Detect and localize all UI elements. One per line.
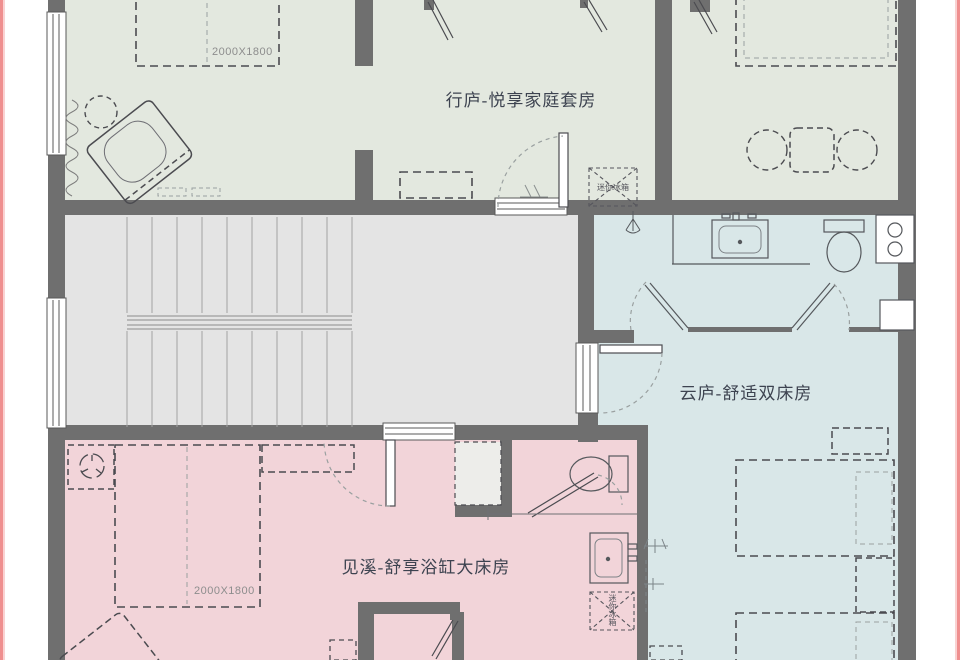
suite-chair-left bbox=[747, 130, 787, 170]
king-bed bbox=[115, 445, 260, 607]
suite-right-bedroom bbox=[736, 0, 896, 172]
king-ceiling-fan bbox=[80, 454, 104, 478]
wall-suite-partition-a bbox=[355, 0, 373, 66]
suite-armchair bbox=[85, 99, 194, 206]
suite-table bbox=[790, 128, 834, 172]
twin-luggage-rack bbox=[832, 428, 888, 454]
window-left-lower bbox=[47, 298, 66, 428]
window-king-entry bbox=[383, 423, 455, 440]
radiator-coil bbox=[66, 100, 78, 196]
floor-plan-canvas: 行庐-悦享家庭套房 云庐-舒适双床房 见溪-舒享浴缸大床房 2000X1800 … bbox=[0, 0, 960, 660]
king-lounge-chair bbox=[57, 611, 163, 660]
bath-partition-seg1 bbox=[688, 327, 792, 332]
wall-suite-partition-b bbox=[355, 150, 373, 202]
wall-shower-stall-bottom bbox=[455, 505, 512, 517]
suite-living-area bbox=[400, 133, 637, 207]
staircase bbox=[127, 217, 352, 427]
twin-bathroom bbox=[626, 211, 914, 330]
suite-right-bed bbox=[736, 0, 896, 66]
suite-bed-size-label: 2000X1800 bbox=[212, 46, 273, 58]
suite-left-bedroom bbox=[66, 0, 279, 206]
king-entry-door bbox=[324, 440, 395, 506]
wall-mid-horizontal bbox=[48, 200, 916, 215]
bath-cabinet bbox=[880, 300, 914, 330]
twin-floor-box bbox=[650, 646, 682, 660]
twin-bed-1 bbox=[736, 460, 894, 556]
king-toilet bbox=[570, 456, 628, 492]
king-bench bbox=[262, 445, 354, 472]
twin-nightstand bbox=[856, 558, 894, 612]
twin-bed-2 bbox=[736, 613, 894, 660]
fixture-symbol-hall-door bbox=[520, 185, 548, 197]
king-bed-size-label: 2000X1800 bbox=[194, 585, 255, 597]
laundry-appliance bbox=[876, 215, 914, 263]
wall-twin-top bbox=[594, 330, 634, 343]
top-edge-doors bbox=[428, 0, 717, 40]
wall-hall-bath bbox=[578, 215, 594, 345]
suite-side-table bbox=[85, 96, 117, 128]
floor-marks bbox=[158, 188, 220, 196]
window-suite-entry bbox=[495, 198, 567, 215]
bath-toilet bbox=[824, 220, 864, 272]
wall-king-closet-v bbox=[358, 602, 374, 660]
king-fridge-label: 迷你冰箱 bbox=[607, 594, 618, 628]
bath-sink bbox=[712, 213, 768, 258]
suite-bench bbox=[400, 172, 472, 198]
wall-king-top bbox=[48, 425, 645, 440]
suite-entry-door bbox=[498, 133, 568, 207]
windows bbox=[47, 12, 598, 440]
shower-stall bbox=[455, 442, 501, 505]
stair-handrail bbox=[127, 316, 352, 329]
window-left-upper bbox=[47, 12, 66, 155]
twin-room-label: 云庐-舒适双床房 bbox=[638, 379, 854, 404]
vanity-counter bbox=[672, 215, 810, 264]
king-sink bbox=[590, 533, 637, 583]
bath-door-right bbox=[792, 283, 849, 330]
window-twin-entry-frame bbox=[576, 343, 598, 413]
king-room bbox=[57, 440, 637, 660]
bath-door-left bbox=[630, 282, 688, 330]
king-nightstand bbox=[68, 445, 114, 489]
family-suite-label: 行庐-悦享家庭套房 bbox=[406, 86, 636, 111]
king-floor-box bbox=[330, 640, 356, 660]
wall-suite-partition-c bbox=[655, 0, 672, 202]
suite-fridge-label: 迷你冰箱 bbox=[592, 182, 634, 193]
king-room-label: 见溪-舒享浴缸大床房 bbox=[312, 553, 540, 578]
suite-chair-right bbox=[837, 130, 877, 170]
